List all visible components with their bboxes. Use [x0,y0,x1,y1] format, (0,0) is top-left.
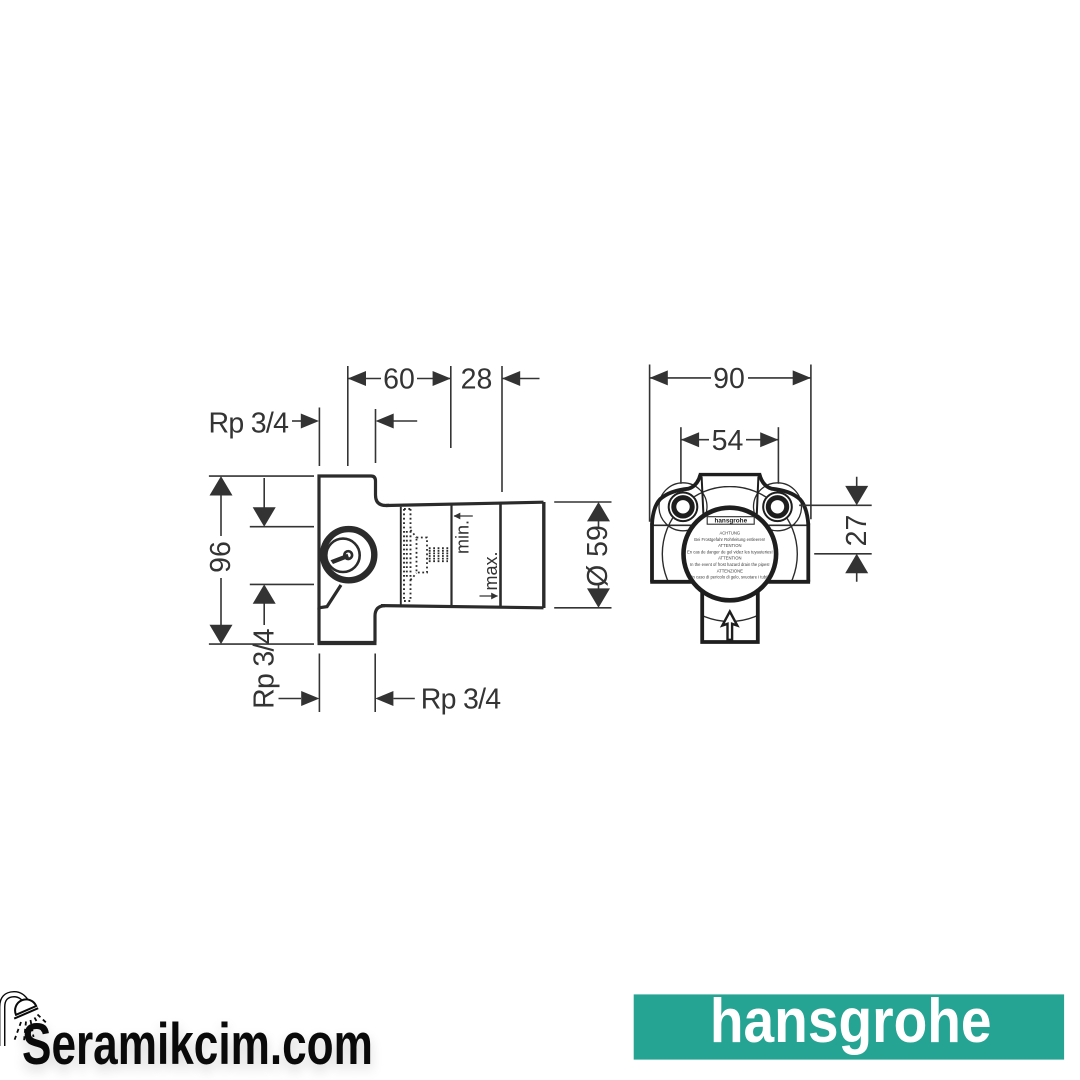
svg-text:Rp 3/4: Rp 3/4 [249,628,281,709]
svg-text:Rp 3/4: Rp 3/4 [421,684,502,716]
svg-text:96: 96 [205,541,237,573]
svg-text:28: 28 [461,364,493,396]
svg-text:27: 27 [841,515,873,547]
svg-text:90: 90 [713,363,745,395]
svg-text:hansgrohe: hansgrohe [710,987,992,1056]
svg-text:En cas de danger de gel videz: En cas de danger de gel videz les tuyaut… [687,550,773,555]
svg-text:max.: max. [481,551,501,590]
svg-text:min.: min. [453,520,473,554]
svg-text:ATTENTION: ATTENTION [718,556,741,561]
svg-text:Ø 59: Ø 59 [582,525,614,587]
svg-text:54: 54 [712,425,744,457]
svg-text:ATTENTION: ATTENTION [718,543,741,548]
svg-text:Rp 3/4: Rp 3/4 [209,408,290,440]
svg-text:Bei Frostgefahr Rohrleitung en: Bei Frostgefahr Rohrleitung entleeren! [694,537,765,542]
svg-text:ACHTUNG: ACHTUNG [719,530,740,535]
svg-text:hansgrohe: hansgrohe [714,518,747,525]
svg-text:ATTENZIONE: ATTENZIONE [717,568,743,573]
svg-text:In the event of frost hazard d: In the event of frost hazard drain the p… [690,562,770,567]
svg-text:60: 60 [383,364,415,396]
svg-text:In caso di pericolo di gelo, s: In caso di pericolo di gelo, svuotare i … [691,575,768,580]
